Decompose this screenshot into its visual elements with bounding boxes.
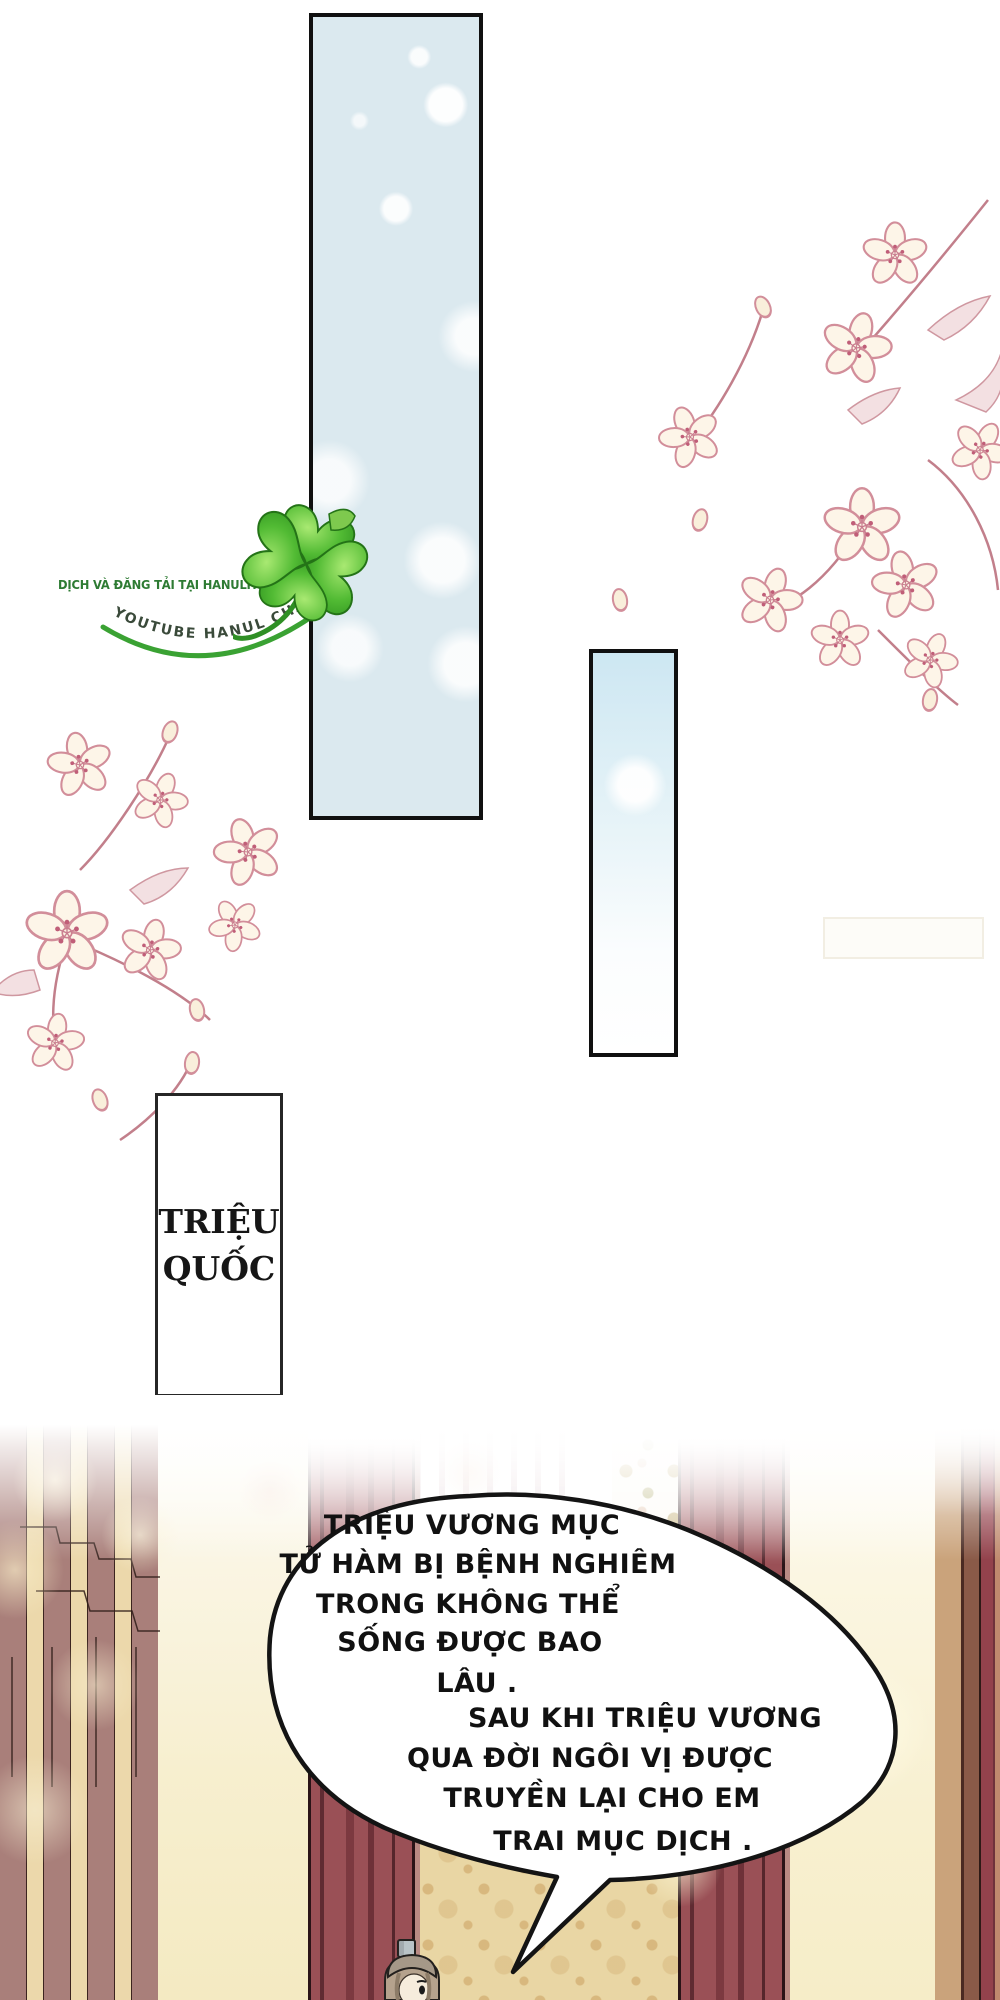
bubble-line-4: SỐNG ĐƯỢC BAO: [337, 1627, 602, 1658]
bubble-line-2: TỬ HÀM BỊ BỆNH NGHIÊM: [280, 1549, 677, 1580]
blossom-bud: [160, 719, 181, 744]
four-leaf-clover-icon: [233, 476, 373, 666]
blossom-flower: [809, 611, 871, 670]
blossom-cluster-left: [0, 660, 320, 1150]
blossom-flower: [861, 222, 929, 287]
blossom-bud: [752, 294, 774, 320]
faint-rectangle: [823, 917, 984, 959]
blossom-flower: [41, 727, 119, 803]
bubble-line-7: QUA ĐỜI NGÔI VỊ ĐƯỢC: [407, 1743, 773, 1774]
blossom-flower: [892, 623, 968, 697]
blossom-bud: [188, 998, 206, 1022]
blossom-flower: [204, 809, 293, 896]
blossom-flower: [20, 1010, 89, 1077]
caption-line-2: QUỐC: [163, 1245, 276, 1292]
blossom-flower: [811, 304, 901, 392]
bubble-line-5: LÂU .: [436, 1668, 517, 1699]
bubble-line-9: TRAI MỤC DỊCH .: [493, 1826, 753, 1857]
bubble-line-3: TRONG KHÔNG THỂ: [316, 1589, 620, 1620]
blossom-flower: [23, 891, 111, 974]
blossom-flower: [198, 888, 272, 961]
comic-page: DỊCH VÀ ĐĂNG TẢI TẠI HANULTRUYEN.COM YOU…: [0, 0, 1000, 2000]
panel-small: [589, 649, 678, 1057]
panel-top-tall: [309, 13, 483, 820]
caption-line-1: TRIỆU: [158, 1198, 279, 1245]
blossom-flower: [649, 397, 731, 477]
watermark-site-text: DỊCH VÀ ĐĂNG TẢI TẠI HANULTRUYEN.COM: [58, 577, 260, 592]
blossom-bud: [611, 588, 629, 612]
blossom-flower: [821, 488, 902, 565]
blossom-bud: [90, 1087, 111, 1112]
bubble-line-8: TRUYỀN LẠI CHO EM: [443, 1783, 760, 1814]
bubble-line-6: SAU KHI TRIỆU VƯƠNG: [468, 1703, 822, 1734]
blossom-bud: [184, 1051, 201, 1075]
caption-box: TRIỆU QUỐC: [155, 1093, 283, 1397]
blossom-flower: [728, 559, 813, 642]
bubble-line-1: TRIỆU VƯƠNG MỤC: [324, 1510, 620, 1541]
blossom-cluster-top-right: [548, 160, 1000, 720]
blossom-bud: [690, 508, 709, 533]
blossom-bud: [921, 688, 939, 712]
